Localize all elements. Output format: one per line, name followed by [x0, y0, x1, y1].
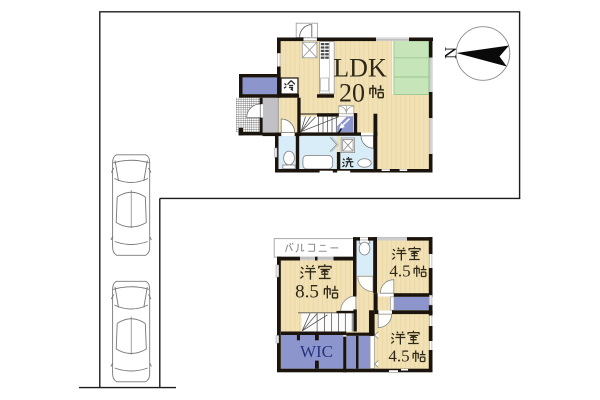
svg-text:WIC: WIC [300, 342, 333, 361]
svg-text:4.5: 4.5 [388, 347, 409, 366]
svg-text:8.5: 8.5 [295, 282, 319, 303]
svg-text:N: N [441, 47, 460, 59]
svg-text:4.5: 4.5 [389, 262, 410, 281]
svg-text:20: 20 [339, 79, 365, 108]
